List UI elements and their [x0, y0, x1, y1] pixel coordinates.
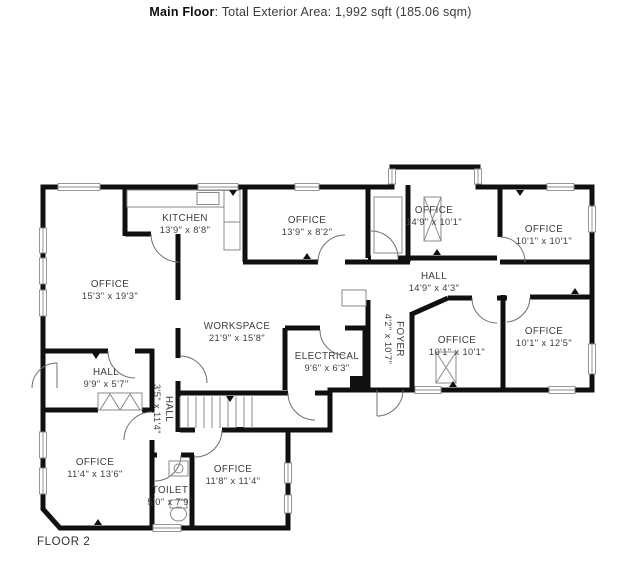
kitchen-appliance — [224, 190, 240, 250]
svg-text:11'8" x 11'4": 11'8" x 11'4" — [206, 476, 261, 486]
svg-text:FOYER: FOYER — [394, 321, 405, 357]
door-arc-toilet — [155, 455, 181, 481]
svg-text:OFFICE: OFFICE — [438, 335, 476, 346]
room-label-hall-149: HALL 14'9" x 4'3" — [409, 271, 460, 293]
door-arc-office-139 — [318, 235, 345, 262]
svg-text:13'9" x 8'2": 13'9" x 8'2" — [282, 227, 333, 237]
room-label-workspace: WORKSPACE 21'9" x 15'8" — [204, 321, 271, 343]
svg-text:11'4" x 13'6": 11'4" x 13'6" — [67, 469, 123, 479]
svg-text:14'9" x 10'1": 14'9" x 10'1" — [406, 217, 462, 227]
svg-text:21'9" x 15'8": 21'9" x 15'8" — [209, 333, 265, 343]
svg-text:OFFICE: OFFICE — [415, 205, 453, 216]
svg-text:13'9" x 8'8": 13'9" x 8'8" — [160, 225, 211, 235]
door-arc-office-114 — [124, 412, 152, 440]
svg-text:10'1" x 10'1": 10'1" x 10'1" — [516, 236, 572, 246]
room-label-office-118-114: OFFICE 11'8" x 11'4" — [206, 464, 261, 486]
staircase — [180, 397, 252, 429]
room-labels-layer: KITCHEN 13'9" x 8'8" OFFICE 13'9" x 8'2"… — [67, 205, 572, 507]
door-arc-office-118 — [195, 430, 222, 457]
room-label-office-topright: OFFICE 10'1" x 10'1" — [516, 224, 572, 246]
svg-text:HALL: HALL — [93, 367, 119, 378]
svg-text:OFFICE: OFFICE — [525, 326, 563, 337]
room-label-hall-99: HALL 9'9" x 5'7" — [83, 367, 128, 389]
floor-number-label: FLOOR 2 — [37, 536, 90, 548]
svg-text:HALL: HALL — [421, 271, 447, 282]
svg-text:15'3" x 19'3": 15'3" x 19'3" — [82, 291, 138, 301]
door-arc-office-bottom-mid — [472, 298, 497, 323]
kitchen-sink — [197, 193, 219, 205]
door-arc-stair-landing — [288, 393, 315, 420]
svg-text:OFFICE: OFFICE — [525, 224, 563, 235]
svg-text:HALL: HALL — [163, 396, 174, 422]
svg-text:14'9" x 4'3": 14'9" x 4'3" — [409, 283, 460, 293]
closet-bifold — [98, 393, 142, 410]
door-arc-office-125 — [507, 297, 530, 322]
svg-text:9'9" x 5'7": 9'9" x 5'7" — [83, 379, 128, 389]
svg-text:ELECTRICAL: ELECTRICAL — [295, 351, 360, 362]
svg-text:OFFICE: OFFICE — [91, 279, 129, 290]
room-label-office-bottom-mid: OFFICE 10'1" x 10'1" — [429, 335, 485, 357]
door-arc-office-workspace — [180, 356, 207, 383]
workspace-cabinet — [342, 290, 366, 306]
room-label-office-101-125: OFFICE 10'1" x 12'5" — [516, 326, 572, 348]
svg-text:OFFICE: OFFICE — [76, 457, 114, 468]
svg-text:OFFICE: OFFICE — [214, 464, 252, 475]
room-label-foyer: FOYER 4'2" x 10'7" — [383, 314, 405, 365]
svg-text:KITCHEN: KITCHEN — [162, 213, 208, 224]
svg-text:10'1" x 12'5": 10'1" x 12'5" — [516, 338, 572, 348]
room-label-kitchen: KITCHEN 13'9" x 8'8" — [160, 213, 211, 235]
svg-text:10'1" x 10'1": 10'1" x 10'1" — [429, 347, 485, 357]
door-arc-foyer-entry — [377, 390, 403, 416]
equipment-cabinet — [374, 197, 402, 253]
svg-text:5'0" x 7'9": 5'0" x 7'9" — [147, 497, 192, 507]
room-label-office-114-136: OFFICE 11'4" x 13'6" — [67, 457, 123, 479]
svg-text:WORKSPACE: WORKSPACE — [204, 321, 271, 332]
wall-mass-foyer-corner — [350, 376, 366, 390]
floorplan-page: { "header": { "floor_name": "Main Floor"… — [0, 0, 621, 569]
room-label-hall-35: HALL 3'5" x 11'4" — [152, 384, 174, 434]
door-arc-office-149 — [371, 231, 398, 258]
door-arc-kitchen — [151, 234, 179, 262]
room-label-office-153-193: OFFICE 15'3" x 19'3" — [82, 279, 138, 301]
svg-text:TOILET: TOILET — [152, 485, 189, 496]
toilet-sink — [169, 461, 188, 476]
room-label-office-139-82: OFFICE 13'9" x 8'2" — [282, 215, 333, 237]
svg-text:3'5" x 11'4": 3'5" x 11'4" — [152, 384, 162, 434]
svg-text:4'2" x 10'7": 4'2" x 10'7" — [383, 314, 393, 365]
floorplan-canvas: KITCHEN 13'9" x 8'8" OFFICE 13'9" x 8'2"… — [0, 0, 621, 569]
room-label-electrical: ELECTRICAL 9'6" x 6'3" — [295, 351, 360, 373]
svg-text:9'6" x 6'3": 9'6" x 6'3" — [304, 363, 349, 373]
svg-text:OFFICE: OFFICE — [288, 215, 326, 226]
